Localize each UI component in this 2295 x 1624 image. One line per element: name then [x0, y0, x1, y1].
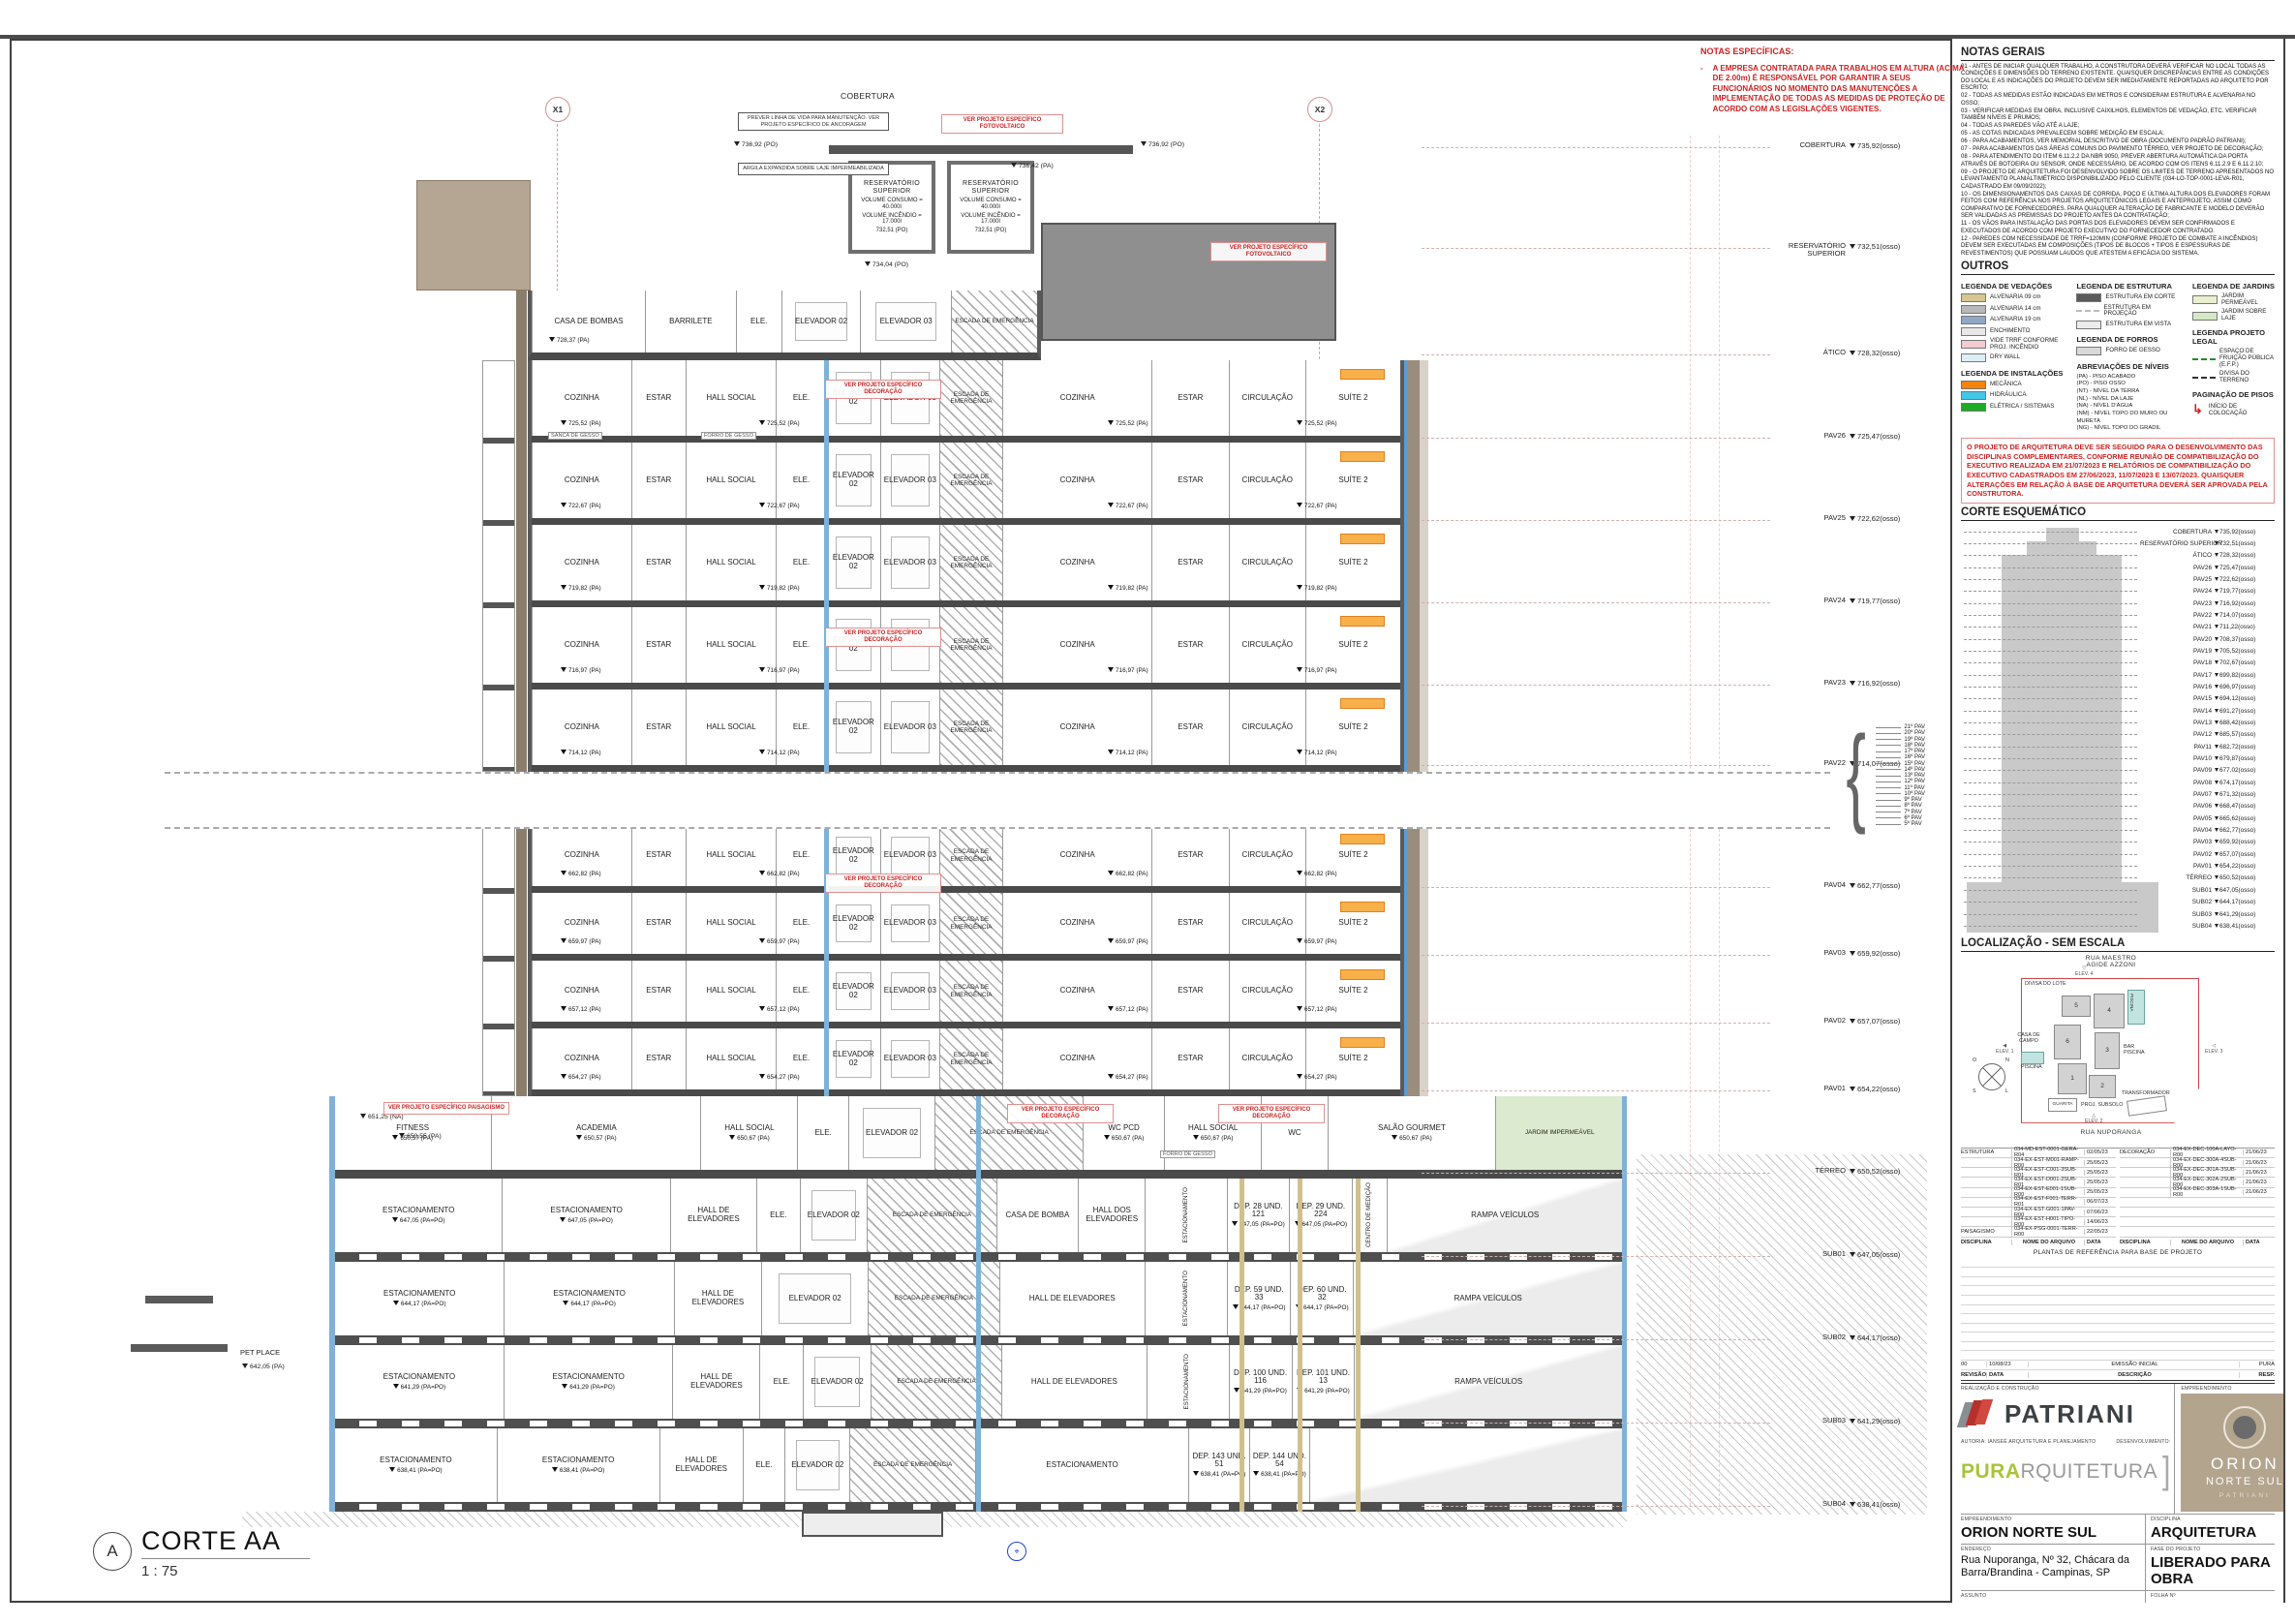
room: ELE.	[743, 1428, 784, 1502]
schematic-level-name: PAV01	[2140, 863, 2212, 870]
level-row: ÁTICO 728,32(osso)	[1770, 349, 1949, 357]
room-label: ESCADA DE EMERGÊNCIA	[942, 638, 1000, 652]
room-label: ESTAR	[646, 851, 671, 860]
room-label: ESTAR	[1178, 919, 1203, 928]
room: CIRCULAÇÃO	[1229, 825, 1305, 886]
room: HALL DE ELEVADORES	[659, 1428, 743, 1502]
file-date: 06/07/23	[2084, 1199, 2116, 1205]
elevator-pit	[802, 1512, 943, 1537]
endereco-value: Rua Nuporanga, Nº 32, Chácara da Barra/B…	[1961, 1554, 2141, 1578]
floor-level: 662,82 (PA)	[561, 871, 601, 877]
level-mark: 736,92 (PO)	[734, 141, 778, 148]
floor-level: 659,97 (PA)	[759, 938, 800, 945]
nota-item: 01 - ANTES DE INICIAR QUALQUER TRABALHO,…	[1961, 64, 2275, 93]
leader	[1964, 711, 2137, 712]
legend-item: VIDE TRRF CONFORME PROJ. INCÊNDIO	[1961, 338, 2068, 352]
level-row: TÉRREO 650,52(osso)	[1770, 1167, 1949, 1176]
level-row: PAV24 719,77(osso)	[1770, 597, 1949, 605]
leader	[1964, 579, 2137, 580]
legend-label: ESTRUTURA EM PROJEÇÃO	[2103, 305, 2184, 319]
repeated-floor-label: 20º PAV	[1904, 730, 1925, 736]
room-label: COZINHA	[565, 987, 599, 996]
room: ESTACIONAMENTO 644,17 (PA=PO)	[504, 1262, 673, 1335]
room-label: ESTAR	[646, 394, 671, 403]
abbr-item: (NG) - NÍVEL TOPO DO GRADIL	[2076, 425, 2184, 433]
revision-table: 00 10/08/23 EMISSÃO INICIAL PURA REVISÃO…	[1961, 1259, 2275, 1381]
tick	[1876, 787, 1901, 788]
wall-strip-blue	[976, 1096, 981, 1512]
room-label: ESTAR	[1178, 987, 1203, 996]
assunto-value: CORTE AA	[1961, 1601, 2141, 1603]
building-block-5: 5	[2062, 996, 2091, 1017]
room-label: ELEVADOR 02	[829, 554, 878, 571]
room-label: ESTACIONAMENTO	[382, 1207, 454, 1215]
file-row	[2120, 1217, 2275, 1227]
elev1-marker: ◀ELEV. 1	[1996, 1044, 2014, 1055]
room-label: ESTAR	[1178, 851, 1203, 860]
room-label: ESCADA DE EMERGÊNCIA	[942, 720, 1000, 734]
brace-glyph: {	[1846, 724, 1866, 827]
room-label: CIRCULAÇÃO	[1242, 851, 1293, 860]
logos-block: REALIZAÇÃO E CONSTRUÇÃO PATRIANI AUTORIA…	[1961, 1383, 2275, 1514]
floor-level: 728,37 (PA)	[549, 337, 590, 344]
room-label: ELEVADOR 03	[880, 318, 933, 326]
room: ESTAR	[1151, 1028, 1228, 1089]
abbr-list: (PA) - PISO ACABADO(PO) - PISO OSSO(NT) …	[2076, 374, 2184, 433]
schematic-level-row: ÁTICO 728,32(osso)	[1961, 550, 2275, 562]
leader	[1964, 866, 2137, 867]
files-right: DECORAÇÃO 034-EX-DEC-100A-LAYO-R00 21/06…	[2120, 1149, 2275, 1238]
level-value: 654,22(osso)	[1850, 1085, 1900, 1093]
room: ESCADA DE EMERGÊNCIA	[939, 607, 1002, 683]
repeated-floor: 15º PAV	[1876, 761, 1954, 767]
red-annotation: VER PROJETO ESPECÍFICO FOTOVOLTAICO	[941, 114, 1063, 134]
atico-rooms: CASA DE BOMBAS BARRILETE ELE. ELEVADOR 0…	[532, 291, 1037, 352]
files-header: DATA	[2084, 1240, 2116, 1245]
schematic-level-row: PAV17 699,82(osso)	[1961, 669, 2275, 681]
legend-item: ALVENARIA 19 cm	[1961, 316, 2068, 324]
level-value: 641,29(osso)	[1850, 1417, 1900, 1425]
legend-title: LEGENDA DE VEDAÇÕES	[1961, 282, 2068, 291]
leader-line	[1422, 955, 1770, 956]
level-row: PAV03 659,92(osso)	[1770, 949, 1949, 958]
room: ESTAR	[631, 360, 686, 436]
room-label: COZINHA	[1060, 476, 1095, 485]
schematic-level-row: PAV23 716,92(osso)	[1961, 598, 2275, 609]
schematic-level-row: PAV24 719,77(osso)	[1961, 586, 2275, 598]
room-label: ACADEMIA	[576, 1124, 617, 1133]
room: ELEVADOR 02	[826, 525, 880, 600]
revision-header-row: REVISÃO DATA DESCRIÇÃO RESP.	[1961, 1370, 2275, 1381]
floor-level: 659,97 (PA)	[561, 938, 601, 945]
floor-level: 716,97 (PA)	[759, 667, 800, 674]
room-label: ESTAR	[646, 919, 671, 928]
bar-piscina-label: BAR PISCINA	[2124, 1044, 2149, 1056]
repeated-floor-label: 10º PAV	[1904, 791, 1925, 797]
room-label: ESTACIONAMENTO	[542, 1456, 614, 1465]
file-discipline: ESTRUTURA	[1961, 1149, 2011, 1155]
floor-band: COZINHA ESTAR HALL SOCIAL ELE.	[532, 1028, 1400, 1096]
pura-bracket: ]	[2162, 1451, 2170, 1493]
room-label: SUÍTE 2	[1338, 559, 1367, 567]
schematic-level-name: PAV02	[2140, 851, 2212, 858]
room-label: ELEVADOR 02	[829, 472, 878, 489]
floor-rooms: COZINHA ESTAR HALL SOCIAL ELE.	[532, 893, 1400, 954]
room: ESCADA DE EMERGÊNCIA	[871, 1345, 1001, 1419]
disciplina-label: DISCIPLINA	[2151, 1517, 2271, 1522]
level-name: PAV24	[1770, 597, 1846, 604]
folha-value: 1000	[2151, 1601, 2271, 1603]
leader	[1964, 651, 2137, 652]
room: SALÃO GOURMET 650,67 (PA)	[1328, 1096, 1496, 1170]
schematic-level-row: RESERVATÓRIO SUPERIOR 732,51(osso)	[1961, 537, 2275, 549]
revision-row-empty	[1961, 1286, 2275, 1296]
room: ESCADA DE EMERGÊNCIA	[939, 961, 1002, 1022]
legend-title: LEGENDA DE INSTALAÇÕES	[1961, 369, 2068, 378]
leader-line	[1422, 354, 1770, 355]
leader-line	[1422, 147, 1770, 148]
floor-level: 725,52 (PA)	[1108, 420, 1148, 427]
legend-item: ESTRUTURA EM PROJEÇÃO	[2076, 305, 2184, 319]
schematic-level-row: COBERTURA 735,92(osso)	[1961, 526, 2275, 537]
pet-place-label: PET PLACE	[240, 1348, 280, 1357]
schematic-level-value: 685,57(osso)	[2212, 731, 2275, 738]
nota-item: 09 - O PROJETO DE ARQUITETURA FOI DESENV…	[1961, 169, 2275, 191]
room-label: BARRILETE	[669, 318, 712, 326]
schematic-level-row: PAV04 662,77(osso)	[1961, 824, 2275, 836]
legend-label: JARDIM PERMEÁVEL	[2221, 293, 2275, 307]
building-block-3: 3	[2095, 1032, 2120, 1069]
room-level: 650,67 (PA)	[1392, 1135, 1432, 1142]
level-name: PAV04	[1770, 881, 1846, 889]
file-row	[2120, 1208, 2275, 1217]
schematic-level-name: PAV06	[2140, 803, 2212, 810]
room: ESCADA DE EMERGÊNCIA	[939, 360, 1002, 436]
room: ELEVADOR 02	[848, 1096, 934, 1170]
room-label: ELEVADOR 03	[884, 1055, 936, 1063]
room: ELEVADOR 02	[826, 893, 880, 954]
repeated-floor-label: 14º PAV	[1904, 767, 1925, 773]
room: ELEVADOR 02	[781, 291, 861, 352]
floor-rooms: COZINHA ESTAR HALL SOCIAL ELE.	[532, 961, 1400, 1022]
files-header: NOME DO ARQUIVO	[2011, 1240, 2084, 1245]
room-label: ESCADA DE EMERGÊNCIA	[942, 916, 1000, 930]
room-label: HALL DE ELEVADORES	[673, 1207, 754, 1224]
room: ESTAR	[1151, 525, 1228, 600]
floor-level: 662,82 (PA)	[1108, 871, 1148, 877]
schematic-level-name: PAV16	[2140, 684, 2212, 690]
empreendimento-value: ORION NORTE SUL	[1961, 1524, 2141, 1541]
level-value: 716,92(osso)	[1850, 679, 1900, 688]
room: ESTAR	[631, 607, 686, 683]
legend-title: LEGENDA DE ESTRUTURA	[2076, 282, 2184, 291]
legend-title: LEGENDA PROJETO LEGAL	[2192, 328, 2275, 346]
schematic-level-name: PAV26	[2140, 565, 2212, 571]
empreendimento-logo-label: EMPREENDIMENTO	[2181, 1386, 2283, 1392]
swatch	[2076, 310, 2099, 312]
schematic-level-row: PAV10 679,87(osso)	[1961, 752, 2275, 764]
leader	[1964, 532, 2137, 533]
room-label: JARDIM IMPERMEÁVEL	[1525, 1129, 1595, 1136]
room-label: ESTACIONAMENTO	[1184, 1354, 1191, 1410]
level-mark: 651,25 (NA)	[360, 1114, 404, 1120]
level-name: SUB01	[1770, 1250, 1846, 1258]
room: ESCADA DE EMERGÊNCIA	[939, 1028, 1002, 1089]
floor-rooms: COZINHA ESTAR HALL SOCIAL ELE.	[532, 443, 1400, 518]
legend-items: MECÂNICA HIDRÁULICA ELÉTRICA / SISTEMAS	[1961, 381, 2068, 414]
room: ESCADA DE EMERGÊNCIA	[939, 689, 1002, 765]
revision-header: DATA	[1986, 1372, 2028, 1378]
leader	[1964, 877, 2137, 878]
swatch	[1961, 316, 1986, 324]
swatch	[1961, 403, 1986, 412]
room-label: ESTAR	[1178, 394, 1203, 403]
swatch	[1961, 340, 1986, 349]
room-label: ELE.	[793, 987, 810, 996]
room: ELEVADOR 02	[826, 689, 880, 765]
file-date: 22/05/23	[2084, 1229, 2116, 1235]
file-date: 25/05/23	[2084, 1180, 2116, 1185]
files-left: ESTRUTURA 034-MD-EST-0001-GERA-R04 02/05…	[1961, 1149, 2116, 1238]
leader	[1964, 734, 2137, 735]
room-label: ESCADA DE EMERGÊNCIA	[942, 848, 1000, 862]
room-label: HALL SOCIAL	[706, 559, 755, 567]
room-level: 647,05 (PA=PO)	[392, 1217, 445, 1224]
wall-strip-blue	[1622, 1096, 1627, 1512]
schematic-level-value: 694,12(osso)	[2212, 695, 2275, 702]
level-value: 728,32(osso)	[1850, 349, 1900, 357]
revision-row-empty	[1961, 1342, 2275, 1352]
room-label: ELE.	[793, 723, 810, 732]
schematic-level-name: ÁTICO	[2140, 552, 2212, 559]
gesso-tag: FORRO DE GESSO	[1160, 1150, 1215, 1158]
room: ELEVADOR 03	[880, 1028, 939, 1089]
wall-strip-blue	[329, 1096, 335, 1512]
legend-items: ESTRUTURA EM CORTE ESTRUTURA EM PROJEÇÃO…	[2076, 293, 2184, 331]
file-date: 25/05/23	[2084, 1189, 2116, 1195]
room-level: 644,17 (PA=PO)	[393, 1301, 446, 1307]
room-label: ELEVADOR 03	[884, 851, 936, 860]
room: CIRCULAÇÃO	[1229, 1028, 1305, 1089]
room-label: ESTAR	[646, 559, 671, 567]
floor-band: COZINHA ESTAR HALL SOCIAL ELE.	[532, 525, 1400, 607]
building-block-2: 2	[2089, 1075, 2116, 1098]
file-date: 25/05/23	[2084, 1170, 2116, 1176]
facade-strip-right-2	[1420, 360, 1428, 1096]
room: ESTAR	[631, 961, 686, 1022]
room-label: HALL SOCIAL	[706, 987, 755, 996]
corte-esquematico-title: CORTE ESQUEMÁTICO	[1961, 506, 2275, 521]
floor-band: COZINHA ESTAR HALL SOCIAL ELE.	[532, 893, 1400, 961]
legend-item: ALVENARIA 14 cm	[1961, 305, 2068, 314]
room-label: ESTAR	[646, 723, 671, 732]
files-header: DATA	[2243, 1240, 2275, 1245]
orion-line2: NORTE SUL	[2206, 1476, 2283, 1487]
legends: LEGENDA DE VEDAÇÕES ALVENARIA 09 cm ALVE…	[1961, 278, 2275, 433]
facade-strip-right	[1408, 360, 1420, 1096]
room-label: ELE.	[793, 394, 810, 403]
section-break	[165, 772, 1830, 829]
room-label: ESTACIONAMENTO	[1183, 1187, 1190, 1243]
room-level: 650,67 (PA)	[1104, 1135, 1145, 1142]
legend-items: JARDIM PERMEÁVEL JARDIM SOBRE LAJE	[2192, 293, 2275, 324]
level-row: SUB03 641,29(osso)	[1770, 1417, 1949, 1425]
schematic-level-row: PAV03 659,92(osso)	[1961, 837, 2275, 848]
floor-level: 716,97 (PA)	[1297, 667, 1337, 674]
legend-item: MECÂNICA	[1961, 381, 2068, 389]
room-label: ESTACIONAMENTO	[383, 1290, 455, 1299]
room-label: SUÍTE 2	[1338, 476, 1367, 485]
room-label: ESCADA DE EMERGÊNCIA	[942, 984, 1000, 997]
balcony-stack-upper	[482, 360, 515, 772]
swatch	[2076, 347, 2101, 355]
room-label: ELEVADOR 02	[866, 1129, 918, 1138]
revision-date: 10/08/23	[1986, 1362, 2028, 1367]
schematic-level-name: PAV22	[2140, 612, 2212, 619]
legend-items: FORRO DE GESSO	[2076, 347, 2184, 358]
schematic-level-value: 654,22(osso)	[2212, 863, 2275, 870]
legend-label: MECÂNICA	[1990, 382, 2022, 388]
leader	[1964, 675, 2137, 676]
floor-level: 716,97 (PA)	[561, 667, 601, 674]
compass-l: L	[2005, 1088, 2008, 1094]
red-annotation: VER PROJETO ESPECÍFICO DECORAÇÃO	[1218, 1104, 1325, 1123]
nota-item: 02 - TODAS AS MEDIDAS ESTÃO INDICADAS EM…	[1961, 93, 2275, 107]
schematic-level-value: 647,05(osso)	[2212, 887, 2275, 894]
floor-level: 719,82 (PA)	[759, 585, 800, 592]
purarquitetura-logo: PURA RQUITETURA ]	[1961, 1455, 2170, 1488]
schematic-level-value: 679,87(osso)	[2212, 755, 2275, 762]
level-value: 659,92(osso)	[1850, 949, 1900, 958]
legend-label: ESTRUTURA EM VISTA	[2105, 322, 2171, 328]
room-label: HALL DE ELEVADORES	[662, 1456, 741, 1474]
swatch	[1961, 327, 1986, 336]
level-row: SUB01 647,05(osso)	[1770, 1250, 1949, 1259]
legend-label: ENCHIMENTO	[1990, 328, 2030, 335]
room: ESTACIONAMENTO 647,05 (PA=PO)	[502, 1179, 669, 1252]
pool-left-label: PISCINA	[2021, 1064, 2042, 1070]
repeated-floor-label: 15º PAV	[1904, 761, 1925, 767]
room: HALL DE ELEVADORES	[674, 1262, 761, 1335]
schematic-level-name: PAV05	[2140, 815, 2212, 822]
room-label: DEP. 101 UND. 13	[1295, 1369, 1353, 1387]
floor-band: COZINHA ESTAR HALL SOCIAL ELE.	[532, 825, 1400, 893]
room: ELE.	[759, 1345, 803, 1419]
level-value: 644,17(osso)	[1850, 1333, 1900, 1342]
title-block-fields: EMPREENDIMENTO ORION NORTE SUL DISCIPLIN…	[1961, 1514, 2275, 1603]
leader-line	[1422, 520, 1770, 521]
red-annotation: VER PROJETO ESPECÍFICO DECORAÇÃO	[825, 380, 941, 399]
leader	[1964, 662, 2137, 663]
room-label: ELE.	[814, 1129, 831, 1138]
room-label: SUÍTE 2	[1338, 394, 1367, 403]
legend-item: ELÉTRICA / SISTEMAS	[1961, 403, 2068, 412]
room: ELEVADOR 02	[784, 1428, 849, 1502]
room-label: WC	[1288, 1129, 1300, 1138]
revision-resp: PURA	[2239, 1362, 2275, 1367]
legend-label: ALVENARIA 19 cm	[1990, 317, 2041, 323]
reservatorio-title: RESERVATÓRIO SUPERIOR	[852, 180, 932, 196]
schematic-level-value: 716,92(osso)	[2212, 600, 2275, 607]
floor-level: 722,67 (PA)	[1108, 503, 1148, 509]
patriani-books-icon	[1961, 1399, 2000, 1428]
schematic-level-name: SUB02	[2140, 899, 2212, 905]
roof-slab	[829, 145, 1133, 154]
room-label: HALL SOCIAL	[706, 476, 755, 485]
floor-level: 714,12 (PA)	[561, 750, 601, 756]
compass-icon	[1978, 1063, 2005, 1090]
leader	[1964, 890, 2137, 891]
reservatorio-vol1: VOLUME CONSUMO = 40.000l	[852, 198, 932, 211]
revision-empty-rows	[1961, 1259, 2275, 1362]
schematic-level-value: 728,32(osso)	[2212, 552, 2275, 559]
elev4-marker: ▽ELEV. 4	[2075, 966, 2094, 977]
schematic-level-row: PAV21 711,22(osso)	[1961, 622, 2275, 633]
balcony-stack-lower	[482, 825, 515, 1096]
schematic-level-row: PAV20 708,37(osso)	[1961, 633, 2275, 645]
development-cell: EMPREENDIMENTO ORION NORTE SUL PATRIANI	[2175, 1384, 2283, 1514]
drawing-scale: 1 : 75	[141, 1563, 310, 1579]
reservatorio-vol2: VOLUME INCÊNDIO = 17.000l	[951, 213, 1030, 227]
room: ELEVADOR 02	[826, 1028, 880, 1089]
leader-line	[1422, 1339, 1770, 1340]
section-marker: A	[93, 1532, 132, 1571]
revision-header: DESCRIÇÃO	[2028, 1372, 2239, 1378]
floor-band: COZINHA ESTAR HALL SOCIAL ELE.	[532, 360, 1400, 443]
street-label-top: RUA MAESTROAGIDE AZZONI	[2029, 955, 2193, 968]
leader-line	[1422, 1256, 1770, 1257]
repeated-floor-label: 19º PAV	[1904, 737, 1925, 743]
floor-level: 714,12 (PA)	[759, 750, 800, 756]
level-row: PAV01 654,22(osso)	[1770, 1085, 1949, 1093]
room-label: ESCADA DE EMERGÊNCIA	[955, 318, 1033, 324]
room-label: ESTAR	[646, 476, 671, 485]
leader	[1964, 806, 2137, 807]
room: JARDIM IMPERMEÁVEL	[1495, 1096, 1623, 1170]
tick	[1876, 824, 1901, 825]
revision-row: 00 10/08/23 EMISSÃO INICIAL PURA	[1961, 1361, 2275, 1370]
revision-row-empty	[1961, 1296, 2275, 1305]
room-label: ELEVADOR 02	[808, 1211, 860, 1220]
revision-number: 00	[1961, 1362, 1986, 1367]
room-level: 638,41 (PA=PO)	[1193, 1471, 1246, 1478]
retaining-wall	[131, 1344, 228, 1352]
room-label: HALL SOCIAL	[706, 1055, 755, 1063]
room: CIRCULAÇÃO	[1229, 443, 1305, 518]
files-caption: PLANTAS DE REFERÊNCIA PARA BASE DE PROJE…	[1961, 1249, 2275, 1256]
swatch	[1961, 293, 1986, 302]
room-label: ESCADA DE EMERGÊNCIA	[895, 1295, 973, 1302]
elev3-marker: ◁ELEV. 3	[2205, 1044, 2223, 1055]
paginacao-label: INÍCIO DE COLOCAÇÃO	[2209, 403, 2275, 416]
room-label: ELE.	[774, 1378, 790, 1387]
schematic-level-value: 735,92(osso)	[2212, 529, 2275, 536]
schematic-level-name: SUB04	[2140, 923, 2212, 930]
room-level: 650,67 (PA)	[1193, 1135, 1234, 1142]
floor-band: COZINHA ESTAR HALL SOCIAL ELE.	[532, 607, 1400, 689]
nota-item: 04 - TODAS AS PAREDES VÃO ATÉ A LAJE;	[1961, 123, 2275, 130]
leader	[1964, 902, 2137, 903]
abbr-item: (NT) - NÍVEL DA TERRA	[2076, 388, 2184, 396]
level-value: 735,92(osso)	[1850, 141, 1900, 150]
revision-row-empty	[1961, 1259, 2275, 1269]
room: ESTAR	[1151, 961, 1228, 1022]
legend-label: FORRO DE GESSO	[2105, 348, 2159, 354]
room-label: ESCADA DE EMERGÊNCIA	[942, 1052, 1000, 1065]
room-level: 647,05 (PA=PO)	[560, 1217, 613, 1224]
level-row: SUB02 644,17(osso)	[1770, 1333, 1949, 1342]
gesso-tag: FORRO DE GESSO	[701, 432, 756, 440]
